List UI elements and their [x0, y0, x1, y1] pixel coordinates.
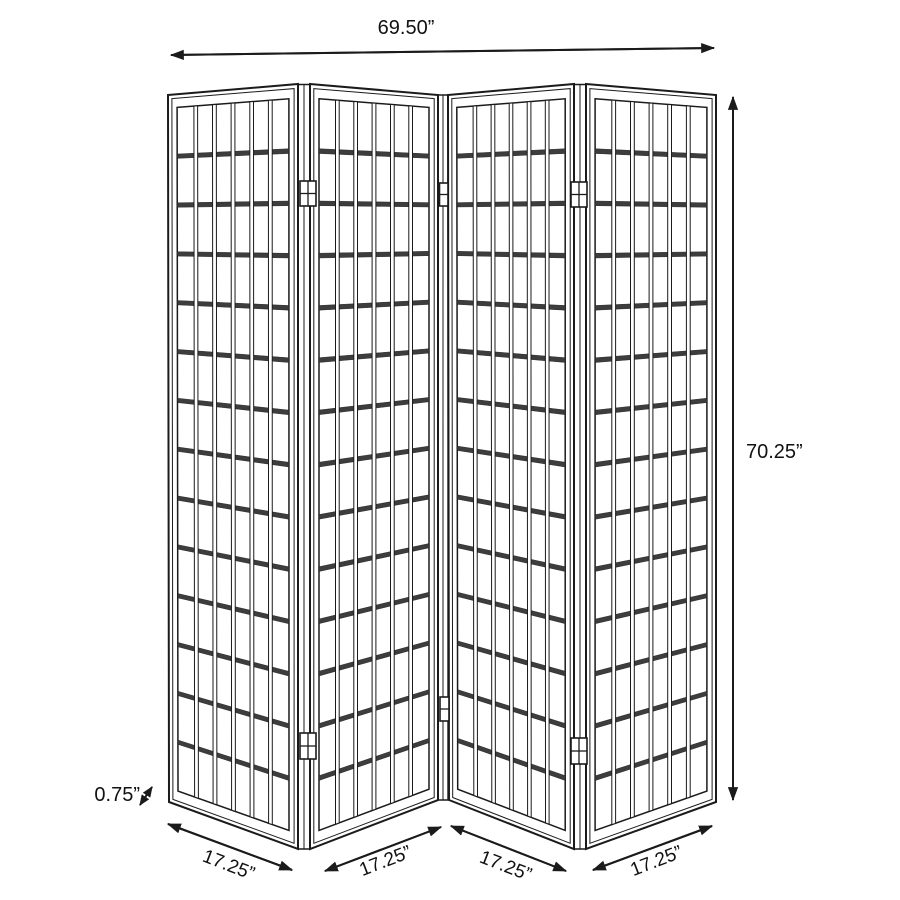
diagram-canvas: 69.50” 70.25” 0.75” 17.25” 17.25” 17.25”	[0, 0, 900, 900]
panel-4	[586, 84, 716, 849]
dimension-overall-height: 70.25”	[733, 97, 803, 800]
panel-1-width-label: 17.25”	[200, 846, 258, 885]
panel-4-width-label: 17.25”	[628, 842, 686, 881]
dimension-overall-width: 69.50”	[171, 17, 714, 55]
panel-1	[168, 84, 298, 849]
room-divider-illustration	[168, 84, 716, 849]
hinge-2-3-top	[440, 183, 449, 206]
panel-thickness-label: 0.75”	[94, 784, 140, 806]
hinge-2-3-bottom	[440, 697, 449, 721]
hinge-3-4-bottom	[571, 738, 587, 764]
overall-height-label: 70.25”	[746, 441, 803, 463]
panel-3-width-label: 17.25”	[477, 847, 535, 886]
dimension-panel-thickness: 0.75”	[94, 784, 152, 806]
hinge-3-4-top	[571, 182, 587, 207]
hinge-1-2-top	[300, 181, 316, 206]
hinge-1-2-bottom	[300, 733, 316, 759]
overall-width-label: 69.50”	[378, 17, 435, 39]
panel-2	[310, 84, 438, 849]
room-divider-diagram: 69.50” 70.25” 0.75” 17.25” 17.25” 17.25”	[0, 0, 900, 900]
panel-3	[448, 84, 574, 849]
